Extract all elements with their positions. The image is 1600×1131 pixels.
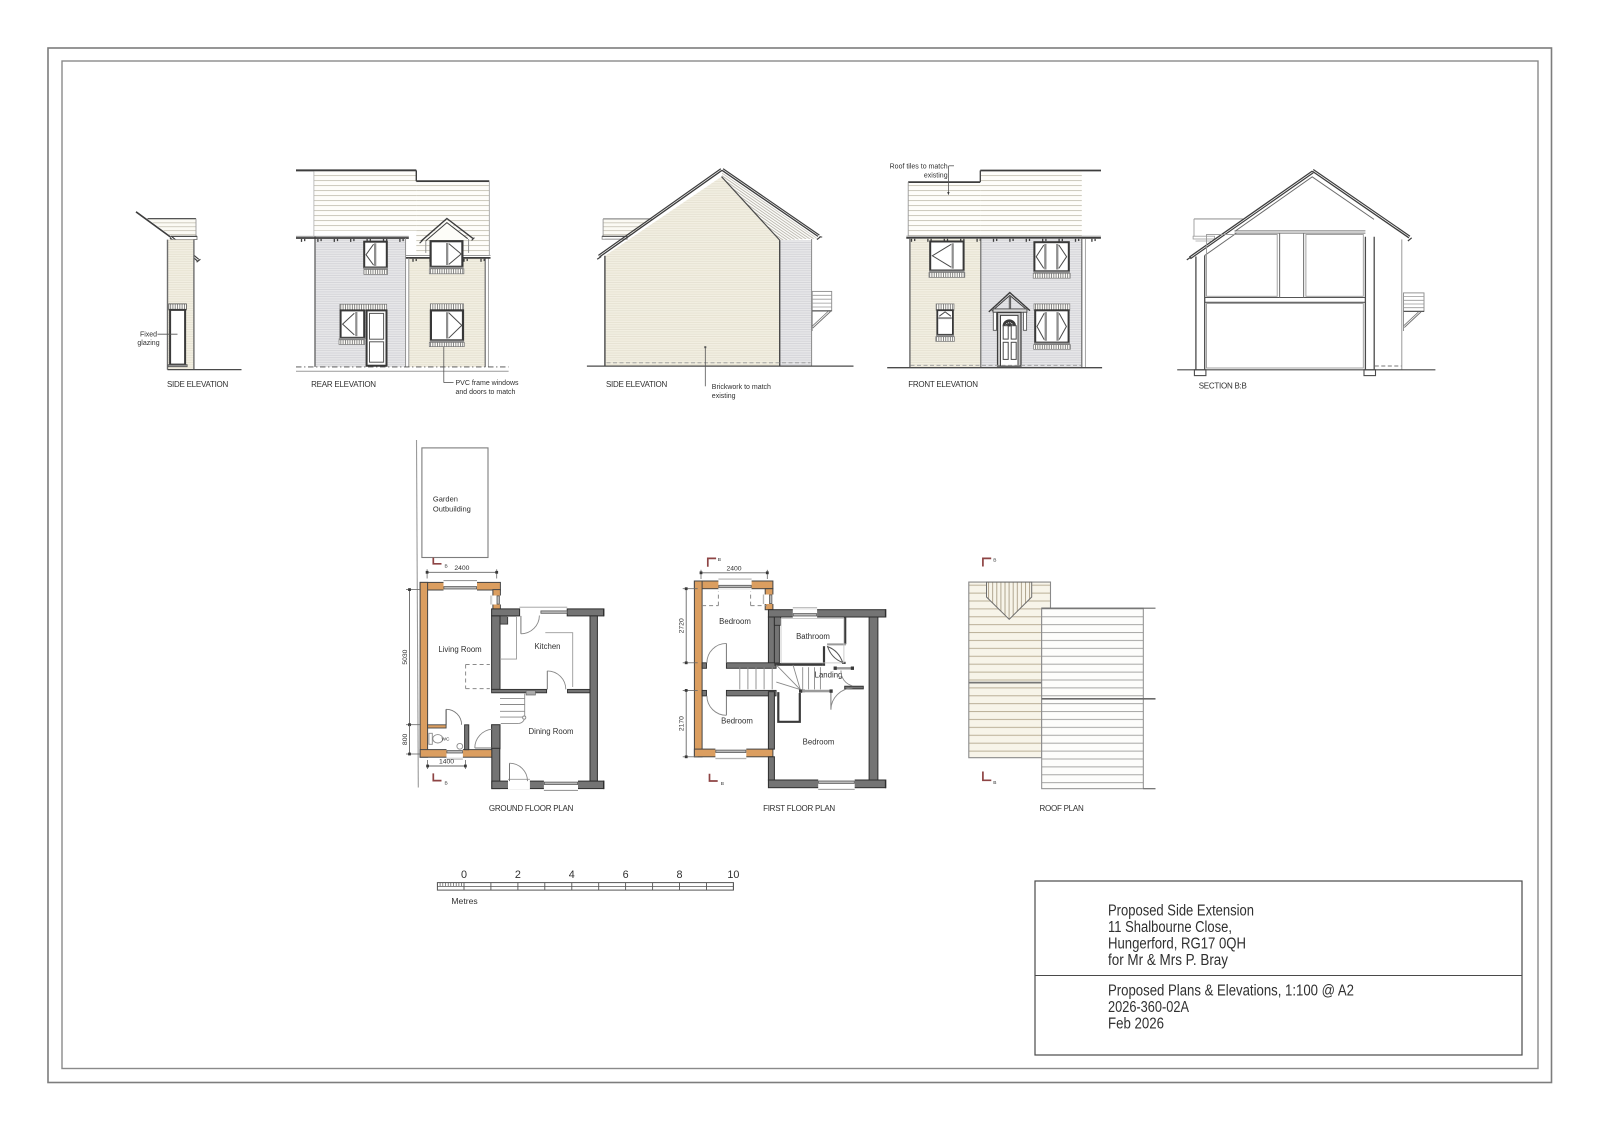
svg-text:Hungerford, RG17 0QH: Hungerford, RG17 0QH [1108, 936, 1246, 953]
svg-text:Dining Room: Dining Room [528, 727, 573, 736]
svg-text:existing: existing [712, 393, 736, 400]
svg-text:Bedroom: Bedroom [803, 738, 835, 747]
svg-text:Brickwork to match: Brickwork to match [712, 384, 771, 391]
svg-text:Bedroom: Bedroom [719, 617, 751, 626]
svg-text:GROUND FLOOR PLAN: GROUND FLOOR PLAN [489, 804, 574, 813]
svg-text:WC: WC [442, 737, 451, 743]
svg-text:glazing: glazing [137, 340, 159, 347]
svg-text:Bathroom: Bathroom [796, 632, 830, 641]
svg-text:10: 10 [727, 869, 739, 881]
svg-text:SIDE ELEVATION: SIDE ELEVATION [606, 380, 668, 389]
svg-text:and doors to match: and doors to match [456, 389, 516, 396]
svg-text:Proposed Plans & Elevations, 1: Proposed Plans & Elevations, 1:100 @ A2 [1108, 983, 1354, 1000]
svg-text:2026-360-02A: 2026-360-02A [1108, 999, 1190, 1016]
svg-text:2170: 2170 [679, 716, 686, 731]
svg-text:B: B [721, 781, 724, 787]
svg-text:5030: 5030 [402, 649, 409, 664]
svg-text:11 Shalbourne Close,: 11 Shalbourne Close, [1108, 919, 1232, 936]
svg-text:Feb 2026: Feb 2026 [1108, 1016, 1164, 1033]
svg-text:Outbuilding: Outbuilding [433, 505, 471, 514]
svg-text:2: 2 [515, 869, 521, 881]
svg-text:4: 4 [569, 869, 575, 881]
svg-text:B: B [993, 780, 996, 786]
svg-text:2720: 2720 [679, 618, 686, 633]
svg-text:FRONT ELEVATION: FRONT ELEVATION [908, 380, 978, 389]
svg-text:for Mr & Mrs P. Bray: for Mr & Mrs P. Bray [1108, 952, 1228, 969]
svg-text:REAR ELEVATION: REAR ELEVATION [311, 380, 376, 389]
svg-text:FIRST FLOOR PLAN: FIRST FLOOR PLAN [763, 804, 835, 813]
svg-text:1400: 1400 [439, 759, 454, 766]
svg-text:Metres: Metres [451, 896, 477, 906]
svg-text:SIDE ELEVATION: SIDE ELEVATION [167, 380, 229, 389]
svg-text:Bedroom: Bedroom [721, 717, 753, 726]
svg-text:Proposed Side Extension: Proposed Side Extension [1108, 903, 1254, 920]
svg-text:8: 8 [676, 869, 682, 881]
svg-text:Living Room: Living Room [438, 645, 481, 654]
svg-text:Garden: Garden [433, 495, 458, 504]
svg-text:Landing: Landing [815, 671, 843, 680]
svg-text:6: 6 [623, 869, 629, 881]
svg-text:2400: 2400 [454, 565, 469, 572]
svg-text:2400: 2400 [726, 565, 741, 572]
svg-text:800: 800 [402, 734, 409, 746]
svg-text:Kitchen: Kitchen [534, 642, 560, 651]
svg-text:Fixed: Fixed [140, 332, 157, 339]
svg-text:0: 0 [461, 869, 467, 881]
svg-text:B: B [445, 564, 448, 570]
svg-text:existing: existing [924, 172, 948, 179]
svg-text:ROOF PLAN: ROOF PLAN [1040, 804, 1084, 813]
svg-text:PVC frame windows: PVC frame windows [456, 380, 520, 387]
svg-text:B: B [718, 557, 721, 563]
svg-text:SECTION B:B: SECTION B:B [1199, 381, 1247, 390]
svg-text:Roof tiles to match: Roof tiles to match [890, 163, 948, 170]
svg-text:B: B [993, 558, 996, 564]
svg-text:B: B [445, 781, 448, 787]
